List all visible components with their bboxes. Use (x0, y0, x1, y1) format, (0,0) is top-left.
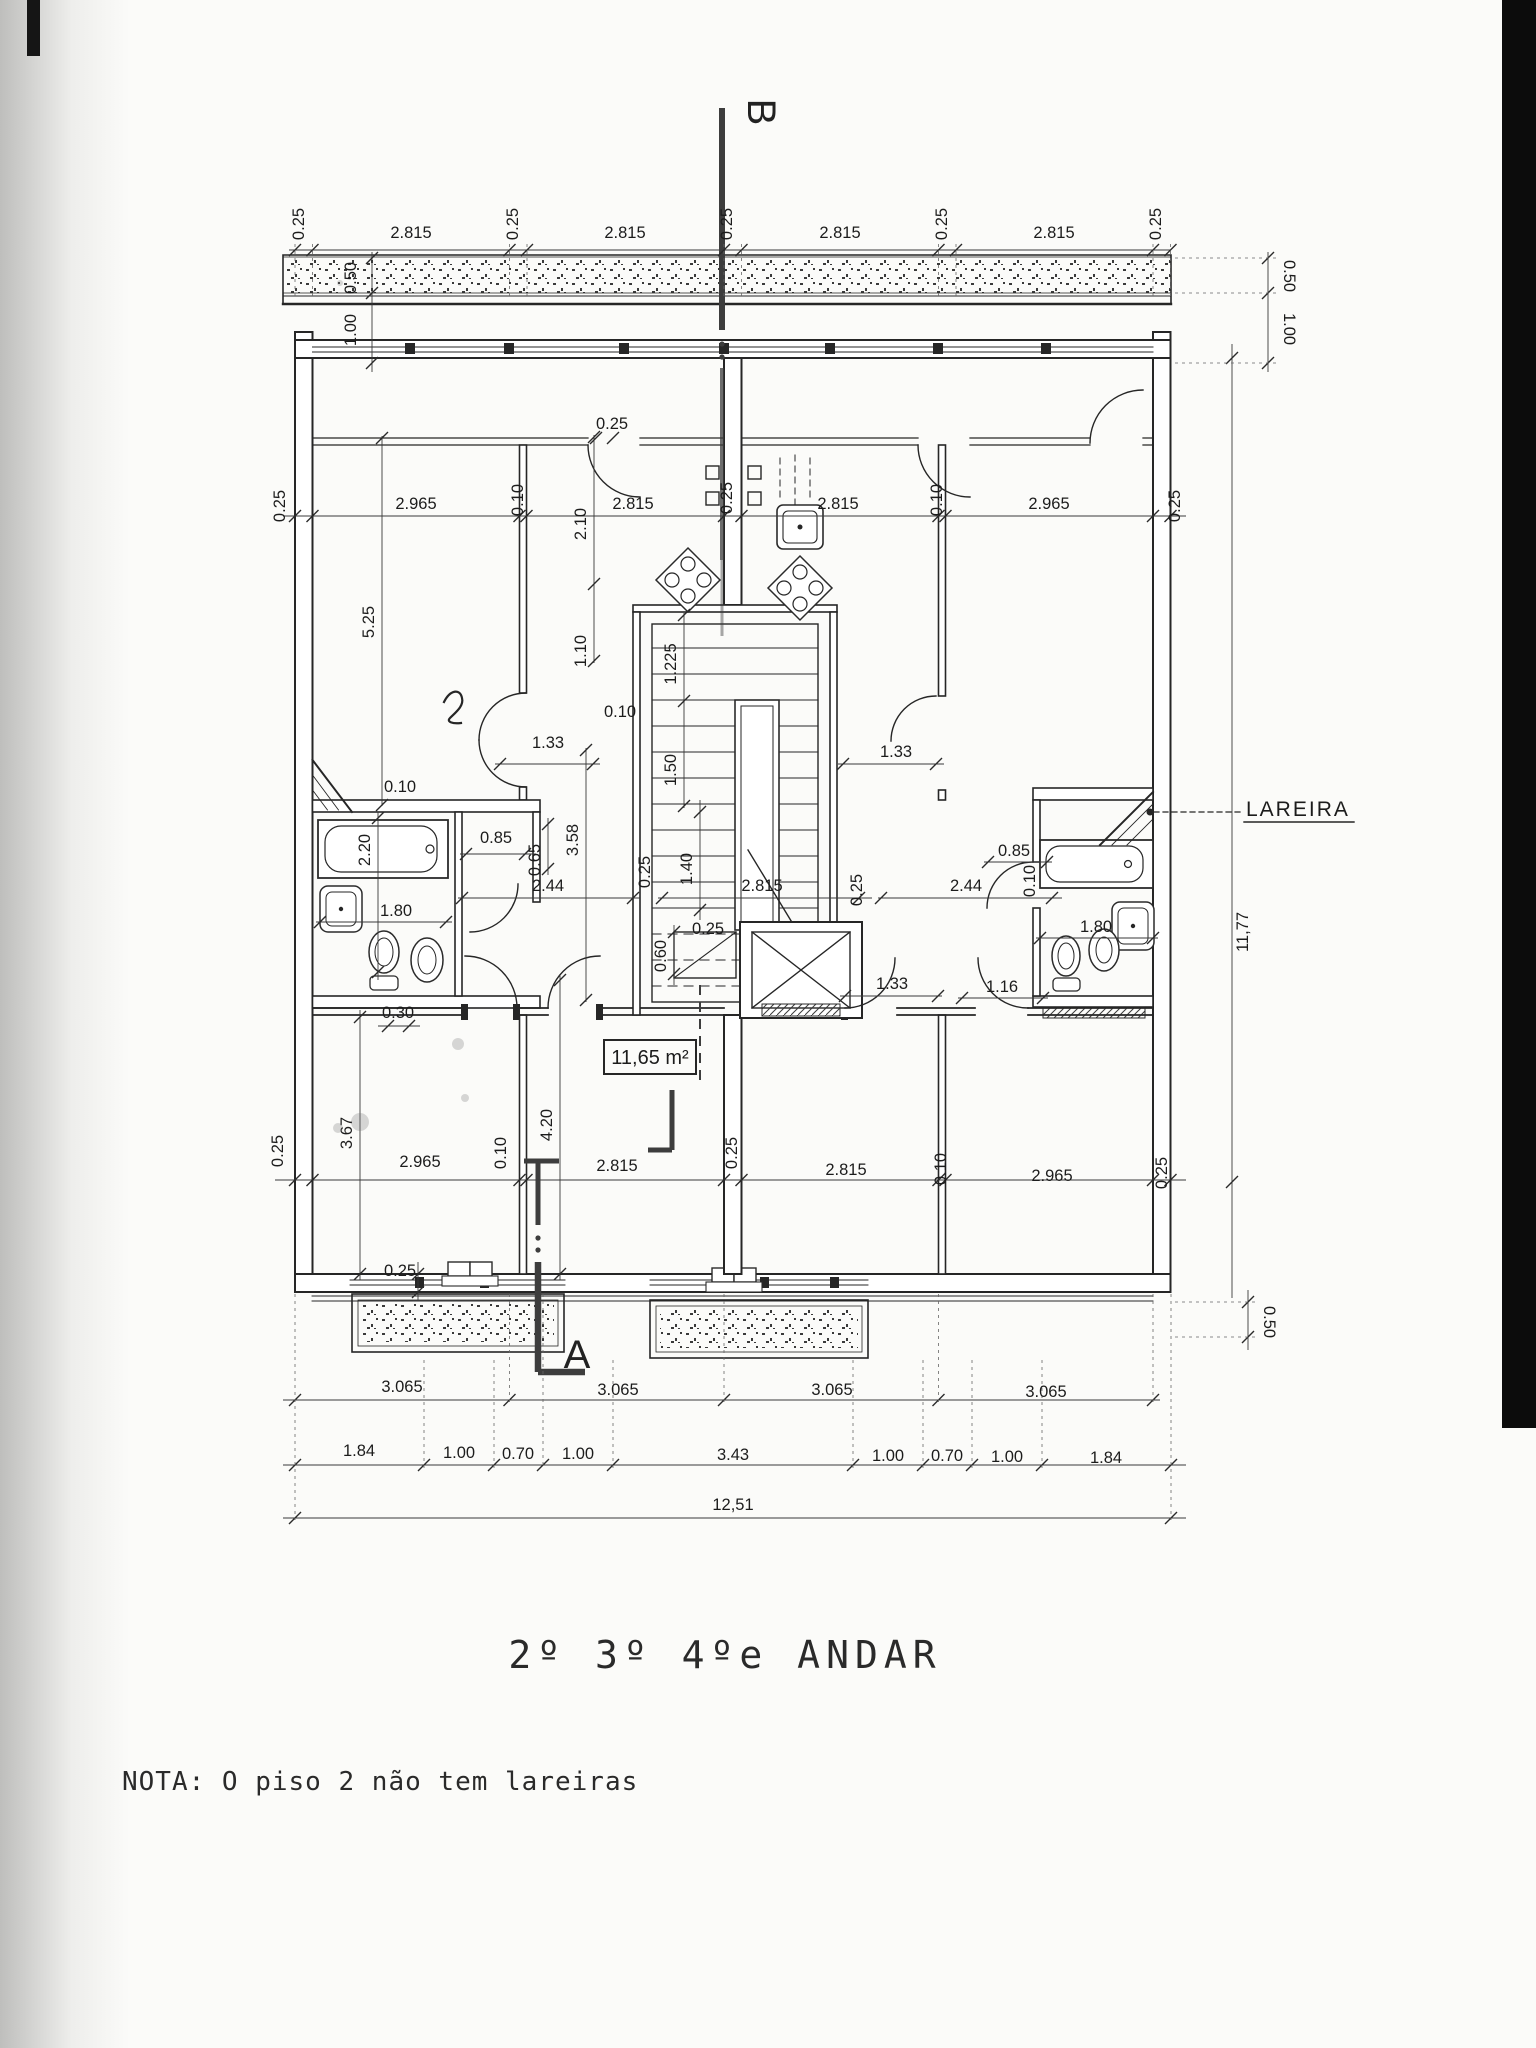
dim-label: 1.00 (991, 1448, 1023, 1466)
dim-label: 1.00 (443, 1444, 475, 1462)
plan-title: 2º 3º 4ºe ANDAR (508, 1633, 941, 1677)
dim-label: 0.10 (384, 778, 416, 796)
dim-label: 1.16 (986, 978, 1018, 996)
dim-label: 3.065 (381, 1378, 422, 1396)
dim-label: 0.25 (384, 1262, 416, 1280)
dim-label: 0.25 (636, 856, 654, 888)
top-balcony (283, 255, 1171, 304)
dim-label: 2.44 (532, 877, 564, 895)
dim-label: 0.25 (1153, 1157, 1171, 1189)
dim-label: 1.33 (880, 743, 912, 761)
dim-label: 0.70 (502, 1445, 534, 1463)
dim-label: 0.85 (998, 842, 1030, 860)
bidet-left (411, 938, 443, 982)
dim-label: 2.965 (1031, 1167, 1072, 1185)
section-label-a: A (564, 1333, 591, 1377)
dim-label: 0.10 (604, 703, 636, 721)
dim-label: 1.10 (572, 635, 590, 667)
dim-label: 0.25 (718, 208, 736, 240)
dim-label: 3.065 (597, 1381, 638, 1399)
dim-label: 0.25 (718, 482, 736, 514)
dim-label: 2.965 (399, 1153, 440, 1171)
handwritten-mark (444, 692, 462, 724)
dim-label: 1.33 (532, 734, 564, 752)
dim-label: 0.70 (931, 1447, 963, 1465)
dim-label: 0.10 (928, 484, 946, 516)
bottom-balcony-right (650, 1300, 868, 1358)
dim-label: 2.815 (596, 1157, 637, 1175)
dim-label: 0.10 (509, 484, 527, 516)
dim-label: 2.815 (1033, 224, 1074, 242)
dim-label: 11,77 (1234, 912, 1252, 952)
dim-label: 2.20 (356, 834, 374, 866)
dim-label: 0.65 (526, 844, 544, 876)
bathtub-left (318, 820, 448, 878)
dim-label: 1.00 (872, 1447, 904, 1465)
floor-plan-drawing: B A 0.252.8150.252.8150.252.8150.252.815… (0, 0, 1536, 2048)
dim-label: 2.815 (817, 495, 858, 513)
dim-label: 0.85 (480, 829, 512, 847)
plan-note: NOTA: O piso 2 não tem lareiras (122, 1767, 638, 1797)
dim-label: 0.25 (692, 920, 724, 938)
dim-label: 2.965 (395, 495, 436, 513)
dim-label: 0.25 (1166, 490, 1184, 522)
dim-label: 0.50 (1260, 1306, 1278, 1338)
dim-label: 2.10 (572, 508, 590, 540)
bathroom-fixtures-right (1040, 840, 1154, 991)
dim-label: 2.815 (390, 224, 431, 242)
dim-label: 0.25 (269, 1135, 287, 1167)
dim-label: 2.965 (1028, 495, 1069, 513)
dim-label: 1.80 (380, 902, 412, 920)
dim-label: 1.225 (662, 643, 680, 684)
dim-label: 1.40 (678, 853, 696, 885)
lareira-label: LAREIRA (1246, 798, 1350, 821)
scanned-floorplan-page: B A 0.252.8150.252.8150.252.8150.252.815… (0, 0, 1536, 2048)
dim-label: 0.10 (1021, 865, 1039, 897)
toilet-right (1052, 936, 1080, 976)
dim-label: 1.84 (343, 1442, 375, 1460)
dim-label: 0.25 (504, 208, 522, 240)
dim-label: 2.815 (819, 224, 860, 242)
dim-label: 0.25 (933, 208, 951, 240)
area-annotation: 11,65 m² (604, 1040, 696, 1074)
dim-label: 3.43 (717, 1446, 749, 1464)
dim-label: 1.80 (1080, 918, 1112, 936)
dim-label: 1.00 (562, 1445, 594, 1463)
dim-label: 2.815 (741, 877, 782, 895)
dim-label: 0.50 (342, 262, 360, 294)
dim-label: 5.25 (360, 606, 378, 638)
dim-label: 0.25 (596, 415, 628, 433)
door-swings (465, 390, 1143, 1008)
section-label-b: B (739, 99, 783, 126)
dim-label: 0.25 (848, 874, 866, 906)
bottom-balcony-left (352, 1294, 564, 1352)
dim-label: 0.10 (932, 1153, 950, 1185)
area-label: 11,65 m² (611, 1047, 689, 1069)
dim-label: 2.815 (612, 495, 653, 513)
dim-label: 2.815 (604, 224, 645, 242)
dim-label: 2.44 (950, 877, 982, 895)
dim-label: 0.50 (1280, 260, 1298, 292)
dim-label: 0.25 (290, 208, 308, 240)
dim-label: 4.20 (538, 1109, 556, 1141)
dim-label: 0.30 (382, 1004, 414, 1022)
dim-label: 0.25 (1147, 208, 1165, 240)
kitchen-fixtures (656, 455, 832, 620)
dim-label: 1.00 (342, 314, 360, 346)
dim-label: 12,51 (712, 1496, 753, 1514)
dim-label: 0.60 (652, 940, 670, 972)
dim-label: 2.815 (825, 1161, 866, 1179)
dim-label: 1.84 (1090, 1449, 1122, 1467)
dim-label: 1.33 (876, 975, 908, 993)
lareira-annotation: LAREIRA (1147, 798, 1355, 822)
dim-label: 1.50 (662, 754, 680, 786)
dim-label: 1.00 (1280, 313, 1298, 345)
dim-label: 3.58 (564, 824, 582, 856)
dim-label: 0.25 (271, 490, 289, 522)
dim-label: 0.25 (723, 1137, 741, 1169)
dim-label: 3.065 (1025, 1383, 1066, 1401)
dim-label: 0.10 (492, 1137, 510, 1169)
dim-label: 3.065 (811, 1381, 852, 1399)
